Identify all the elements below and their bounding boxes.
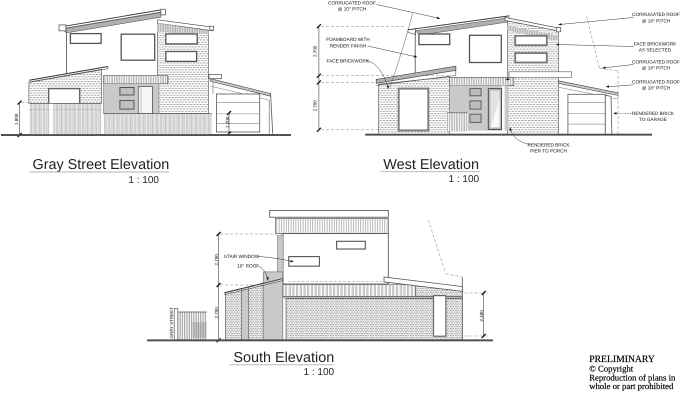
svg-text:2.700: 2.700 — [312, 100, 317, 112]
svg-text:whole or part prohibited: whole or part prohibited — [589, 381, 674, 391]
svg-text:PIER TO PORCH: PIER TO PORCH — [530, 149, 567, 154]
svg-text:10° ROOF: 10° ROOF — [237, 264, 259, 269]
svg-text:FACE BRICKWORK: FACE BRICKWORK — [634, 42, 677, 47]
svg-text:CORRUGATED ROOF: CORRUGATED ROOF — [632, 80, 680, 85]
svg-text:TO GARAGE: TO GARAGE — [639, 117, 667, 122]
svg-text:RENDER FINISH: RENDER FINISH — [330, 43, 366, 48]
svg-text:1 : 100: 1 : 100 — [449, 174, 480, 185]
svg-text:@ 18° PITCH: @ 18° PITCH — [642, 18, 671, 23]
svg-text:2.790: 2.790 — [214, 254, 219, 266]
svg-text:West Elevation: West Elevation — [383, 157, 479, 173]
svg-text:CORRUGATED ROOF: CORRUGATED ROOF — [632, 12, 680, 17]
svg-text:STAIR WINDOW: STAIR WINDOW — [224, 254, 260, 259]
svg-text:1.200: 1.200 — [225, 116, 230, 128]
svg-text:AS SELECTED: AS SELECTED — [639, 48, 672, 53]
svg-text:@ 18° PITCH: @ 18° PITCH — [642, 86, 671, 91]
svg-text:CORRUGATED ROOF: CORRUGATED ROOF — [632, 59, 680, 64]
svg-text:FOAMBOARD WITH: FOAMBOARD WITH — [326, 37, 370, 42]
svg-text:@ 18° PITCH: @ 18° PITCH — [642, 66, 671, 71]
svg-text:2.700: 2.700 — [312, 45, 317, 57]
svg-text:Gray Street Elevation: Gray Street Elevation — [33, 157, 170, 173]
svg-text:1 : 100: 1 : 100 — [128, 175, 159, 186]
svg-text:GRAY STREET: GRAY STREET — [169, 307, 174, 339]
svg-text:@ 10° PITCH: @ 10° PITCH — [338, 6, 367, 11]
svg-text:South Elevation: South Elevation — [233, 350, 334, 366]
svg-text:2.480: 2.480 — [479, 310, 484, 322]
svg-text:1.800: 1.800 — [14, 113, 19, 125]
svg-text:RENDERED BRICK: RENDERED BRICK — [632, 111, 675, 116]
svg-text:FACE BRICKWORK: FACE BRICKWORK — [326, 58, 369, 63]
svg-text:RENDERED BRICK: RENDERED BRICK — [528, 142, 571, 147]
svg-text:2.700: 2.700 — [214, 307, 219, 319]
svg-text:CORRUGATED ROOF: CORRUGATED ROOF — [328, 0, 376, 5]
svg-text:1 : 100: 1 : 100 — [304, 367, 335, 378]
